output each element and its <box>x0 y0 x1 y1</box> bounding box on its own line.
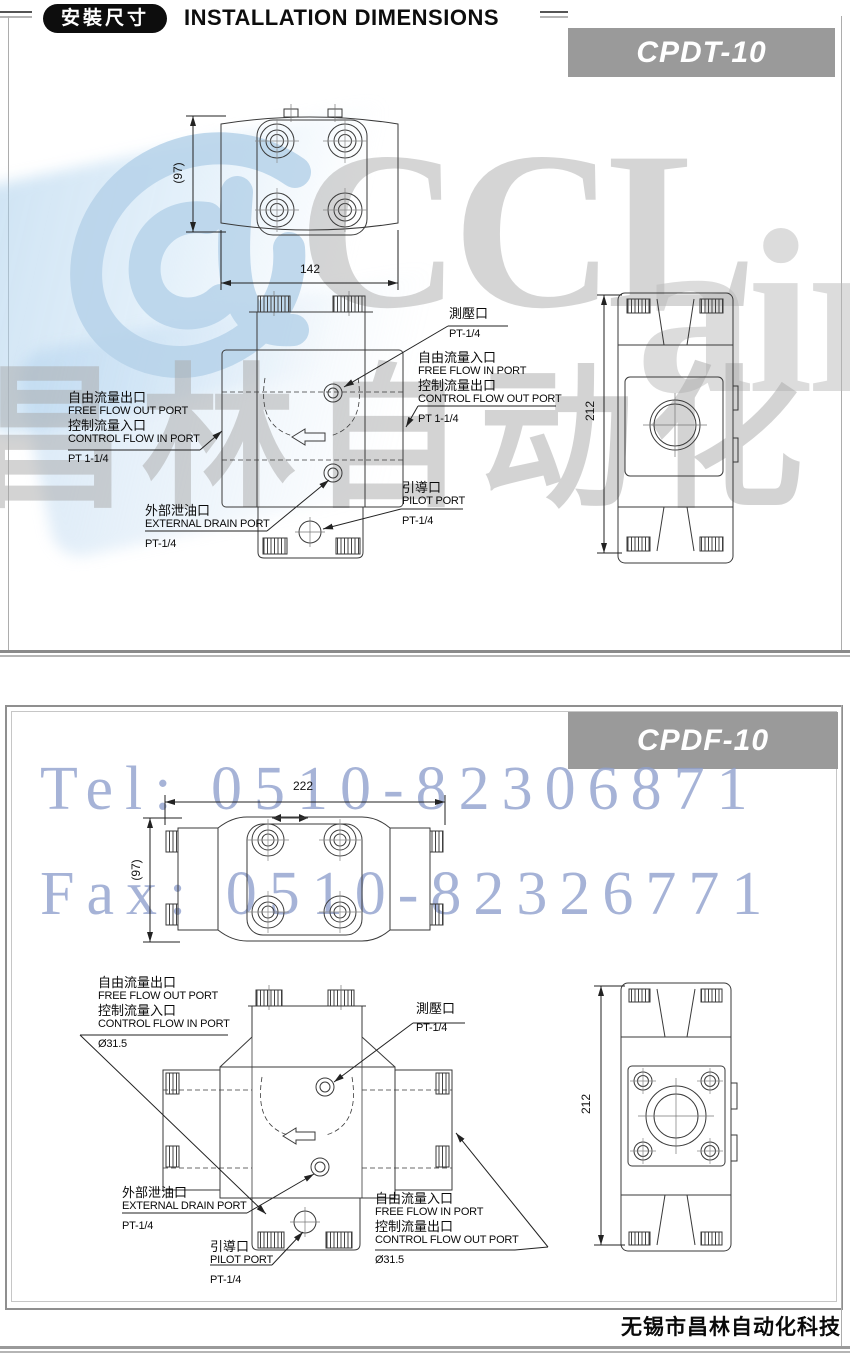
port-size: PT-1/4 <box>122 1220 247 1233</box>
label-en: FREE FLOW IN PORT <box>375 1206 519 1219</box>
label-en: CONTROL FLOW IN PORT <box>98 1018 230 1031</box>
label-pilot-port: 引導口 PILOT PORT PT-1/4 <box>210 1239 273 1287</box>
footer-rule-2 <box>0 1351 850 1353</box>
dim-depth-97: (97) <box>129 850 143 890</box>
label-cn: 控制流量出口 <box>375 1219 519 1234</box>
panel-cpdf-10: CPDF-10 Tel: 0510-82306871 Fax: 0510-823… <box>0 705 850 1315</box>
label-cn: 控制流量入口 <box>98 1003 230 1018</box>
footer-rule <box>0 1346 850 1349</box>
port-size: Ø31.5 <box>375 1254 519 1267</box>
label-en: FREE FLOW OUT PORT <box>98 990 230 1003</box>
catalog-page: 安裝尺寸 INSTALLATION DIMENSIONS CPDT-10 CCL… <box>0 0 850 1365</box>
port-size: PT-1/4 <box>210 1274 273 1287</box>
dim-height-212: 212 <box>579 1084 593 1124</box>
label-free-flow-out-port: 自由流量出口 FREE FLOW OUT PORT 控制流量入口 CONTROL… <box>98 975 230 1051</box>
label-free-flow-out-port: 自由流量出口 FREE FLOW OUT PORT 控制流量入口 CONTROL… <box>68 390 200 466</box>
dim-depth-97: (97) <box>171 153 185 193</box>
footer-company: 无锡市昌林自动化科技 <box>0 1311 841 1341</box>
dim-height-212: 212 <box>583 391 597 431</box>
port-size: PT-1/4 <box>402 515 465 528</box>
label-gauge-port: 測壓口 PT-1/4 <box>416 1001 455 1035</box>
port-size: Ø31.5 <box>98 1038 230 1051</box>
label-en: CONTROL FLOW IN PORT <box>68 433 200 446</box>
label-en: FREE FLOW IN PORT <box>418 365 562 378</box>
label-pilot-port: 引導口 PILOT PORT PT-1/4 <box>402 480 465 528</box>
label-free-flow-in-port: 自由流量入口 FREE FLOW IN PORT 控制流量出口 CONTROL … <box>418 350 562 426</box>
label-en: PILOT PORT <box>402 495 465 508</box>
label-free-flow-in-port: 自由流量入口 FREE FLOW IN PORT 控制流量出口 CONTROL … <box>375 1191 519 1267</box>
label-en: FREE FLOW OUT PORT <box>68 405 200 418</box>
port-size: PT 1-1/4 <box>68 453 200 466</box>
port-size: PT 1-1/4 <box>418 413 562 426</box>
label-cn: 引導口 <box>402 480 465 495</box>
panel-cpdt-10: 安裝尺寸 INSTALLATION DIMENSIONS CPDT-10 CCL… <box>0 0 850 660</box>
dim-width-142: 142 <box>290 262 330 276</box>
label-gauge-port: 測壓口 PT-1/4 <box>449 306 488 341</box>
dim-width-222: 222 <box>283 779 323 793</box>
port-size: PT-1/4 <box>416 1022 455 1035</box>
label-cn: 自由流量出口 <box>98 975 230 990</box>
label-cn: 自由流量出口 <box>68 390 200 405</box>
port-size: PT-1/4 <box>449 328 488 341</box>
label-en: CONTROL FLOW OUT PORT <box>375 1234 519 1247</box>
label-cn: 外部泄油口 <box>122 1185 247 1200</box>
label-en: PILOT PORT <box>210 1254 273 1267</box>
label-external-drain-port: 外部泄油口 EXTERNAL DRAIN PORT PT-1/4 <box>145 503 270 551</box>
label-en: EXTERNAL DRAIN PORT <box>122 1200 247 1213</box>
label-cn: 自由流量入口 <box>418 350 562 365</box>
label-cn: 控制流量入口 <box>68 418 200 433</box>
label-en: EXTERNAL DRAIN PORT <box>145 518 270 531</box>
cpdt10-drawing <box>0 0 850 660</box>
label-cn: 測壓口 <box>449 306 488 321</box>
label-cn: 外部泄油口 <box>145 503 270 518</box>
label-en: CONTROL FLOW OUT PORT <box>418 393 562 406</box>
port-size: PT-1/4 <box>145 538 270 551</box>
label-cn: 自由流量入口 <box>375 1191 519 1206</box>
label-cn: 測壓口 <box>416 1001 455 1016</box>
label-cn: 控制流量出口 <box>418 378 562 393</box>
label-cn: 引導口 <box>210 1239 273 1254</box>
label-external-drain-port: 外部泄油口 EXTERNAL DRAIN PORT PT-1/4 <box>122 1185 247 1233</box>
